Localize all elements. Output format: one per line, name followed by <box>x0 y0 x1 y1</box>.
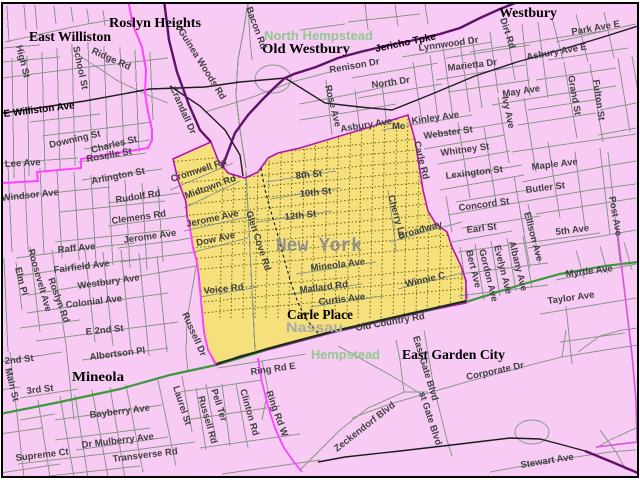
svg-text:New York: New York <box>276 235 362 257</box>
svg-text:East Williston: East Williston <box>29 29 111 44</box>
svg-text:Mineola: Mineola <box>72 369 124 384</box>
svg-text:Old Westbury: Old Westbury <box>262 41 350 56</box>
svg-text:Hempstead: Hempstead <box>311 347 380 362</box>
svg-text:Nassau: Nassau <box>286 319 343 335</box>
svg-text:North Hempstead: North Hempstead <box>264 28 373 43</box>
svg-text:Lee Ave: Lee Ave <box>5 157 41 170</box>
svg-text:Roslyn Heights: Roslyn Heights <box>109 15 201 30</box>
svg-text:Mc: Mc <box>392 121 405 132</box>
